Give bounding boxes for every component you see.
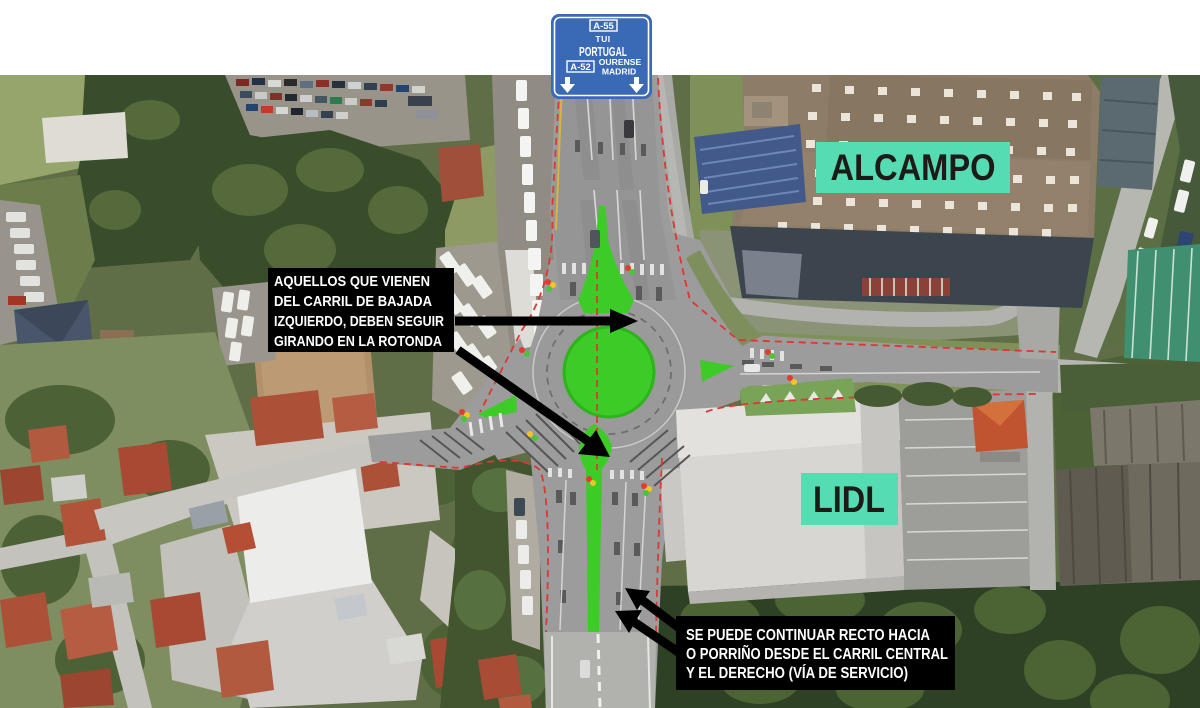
svg-text:LIDL: LIDL <box>813 479 885 520</box>
svg-text:MADRID: MADRID <box>602 67 636 77</box>
svg-text:DEL CARRIL DE BAJADA: DEL CARRIL DE BAJADA <box>274 293 432 310</box>
svg-text:OURENSE: OURENSE <box>599 57 642 67</box>
svg-text:AQUELLOS QUE VIENEN: AQUELLOS QUE VIENEN <box>274 273 430 290</box>
svg-text:O PORRIÑO DESDE EL CARRIL CENT: O PORRIÑO DESDE EL CARRIL CENTRAL <box>686 645 948 663</box>
svg-text:A-55: A-55 <box>593 21 614 32</box>
svg-text:TUI: TUI <box>595 34 610 44</box>
svg-text:GIRANDO EN LA ROTONDA: GIRANDO EN LA ROTONDA <box>274 333 442 350</box>
svg-text:SE PUEDE CONTINUAR RECTO HACIA: SE PUEDE CONTINUAR RECTO HACIA <box>686 627 930 644</box>
svg-text:A-52: A-52 <box>570 62 591 73</box>
svg-text:ALCAMPO: ALCAMPO <box>831 147 996 188</box>
svg-text:IZQUIERDO, DEBEN SEGUIR: IZQUIERDO, DEBEN SEGUIR <box>274 313 444 330</box>
svg-text:Y EL DERECHO (VÍA DE SERVICIO): Y EL DERECHO (VÍA DE SERVICIO) <box>686 665 908 682</box>
